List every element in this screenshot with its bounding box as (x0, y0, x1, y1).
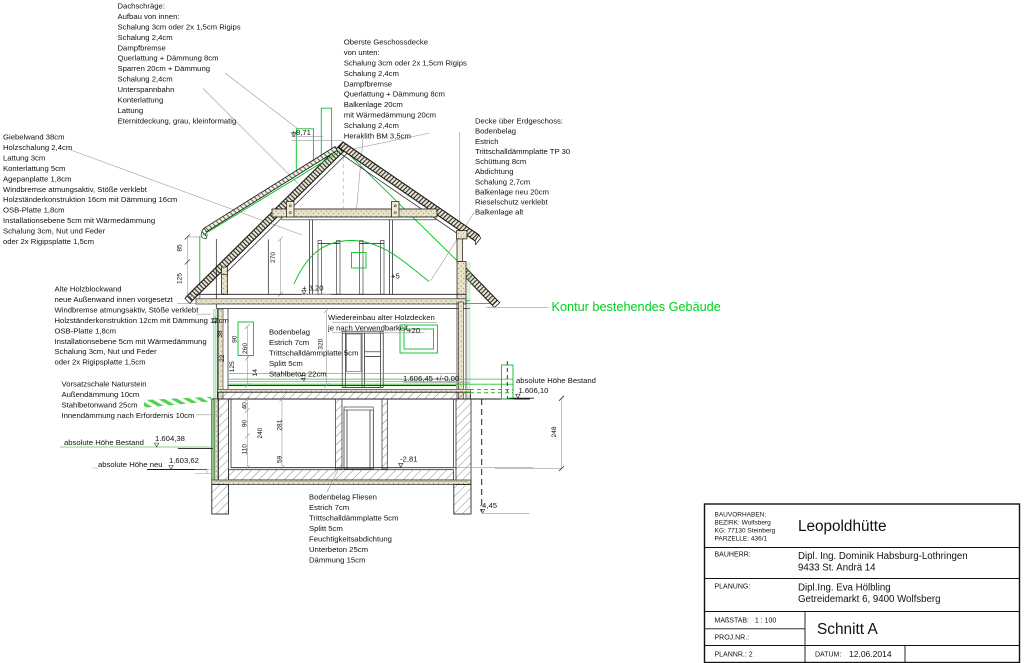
svg-text:40: 40 (242, 402, 249, 410)
svg-text:Holzständerkonstruktion 16cm m: Holzständerkonstruktion 16cm mit Dämmung… (3, 195, 177, 204)
svg-text:Schalung 3cm, Nut und Feder: Schalung 3cm, Nut und Feder (55, 347, 158, 356)
svg-text:Sparren 20cm + Dämmung: Sparren 20cm + Dämmung (118, 64, 211, 73)
svg-text:Dämmung 15cm: Dämmung 15cm (309, 556, 365, 565)
svg-text:oder 2x Rigipsplatte 1,5cm: oder 2x Rigipsplatte 1,5cm (55, 358, 146, 367)
svg-text:Querlattung + Dämmung 8cm: Querlattung + Dämmung 8cm (118, 54, 219, 63)
svg-text:1.604,38: 1.604,38 (155, 434, 185, 443)
svg-text:90: 90 (242, 420, 249, 428)
svg-text:je nach Verwendbarkeit: je nach Verwendbarkeit (327, 323, 409, 332)
svg-text:MAßSTAB: 1 : 100: MAßSTAB: 1 : 100 (715, 618, 777, 625)
svg-text:Estrich 7cm: Estrich 7cm (269, 338, 309, 347)
svg-text:Unterbeton 25cm: Unterbeton 25cm (309, 545, 368, 554)
svg-text:Heraklith BM 3,5cm: Heraklith BM 3,5cm (344, 132, 411, 141)
svg-text:22: 22 (219, 354, 226, 362)
svg-text:110: 110 (242, 444, 249, 455)
svg-text:Außendämmung 10cm: Außendämmung 10cm (62, 390, 140, 399)
svg-text:PARZELLE: 436/1: PARZELLE: 436/1 (715, 536, 768, 543)
svg-text:85: 85 (177, 244, 184, 252)
svg-text:OSB-Platte 1,8cm: OSB-Platte 1,8cm (55, 326, 117, 335)
svg-text:9433 St. Andrä 14: 9433 St. Andrä 14 (798, 563, 876, 574)
svg-text:Stahlbeton 22cm: Stahlbeton 22cm (269, 370, 327, 379)
svg-text:DATUM:: DATUM: (815, 652, 841, 659)
svg-text:Schalung 2,4cm: Schalung 2,4cm (344, 69, 399, 78)
svg-text:oder 2x Rigipsplatte 1,5cm: oder 2x Rigipsplatte 1,5cm (3, 237, 94, 246)
svg-text:von unten:: von unten: (344, 48, 380, 57)
svg-text:Windbremse atmungsaktiv, Stöße: Windbremse atmungsaktiv, Stöße verklebt (55, 305, 200, 314)
svg-text:Installationsebene 5cm mit Wär: Installationsebene 5cm mit Wärmedämmung (3, 216, 155, 225)
svg-text:125: 125 (177, 273, 184, 284)
svg-text:KG: 77130 Steinberg: KG: 77130 Steinberg (715, 528, 776, 535)
svg-text:Lattung 3cm: Lattung 3cm (3, 153, 45, 162)
svg-text:Dachschräge:: Dachschräge: (118, 2, 165, 11)
svg-text:absolute Höhe Bestand: absolute Höhe Bestand (64, 438, 144, 447)
svg-text:neue Außenwand innen vorgesetz: neue Außenwand innen vorgesetzt (55, 295, 174, 304)
svg-text:mit Wärmedämmung 20cm: mit Wärmedämmung 20cm (344, 111, 436, 120)
svg-text:320: 320 (318, 338, 325, 349)
svg-text:Wiedereinbau alter Holzdecken: Wiedereinbau alter Holzdecken (328, 313, 435, 322)
svg-text:Konterlattung: Konterlattung (118, 96, 164, 105)
svg-text:Schalung 2,4cm: Schalung 2,4cm (118, 75, 173, 84)
svg-text:+20: +20 (407, 326, 420, 335)
svg-text:Balkenlage 20cm: Balkenlage 20cm (344, 100, 403, 109)
svg-text:Aufbau von innen:: Aufbau von innen: (118, 12, 180, 21)
svg-text:+ 3,20: + 3,20 (302, 283, 324, 292)
svg-text:Holzständerkonstruktion 12cm m: Holzständerkonstruktion 12cm mit Dämmung… (55, 316, 229, 325)
svg-text:Konterlattung 5cm: Konterlattung 5cm (3, 164, 65, 173)
svg-text:Trittschalldämmplatte 5cm: Trittschalldämmplatte 5cm (309, 514, 398, 523)
svg-text:Schalung 3cm oder 2x 1,5cm Rig: Schalung 3cm oder 2x 1,5cm Rigips (118, 22, 241, 31)
svg-text:Kontur bestehendes Gebäude: Kontur bestehendes Gebäude (552, 300, 721, 314)
svg-text:OSB-Platte 1,8cm: OSB-Platte 1,8cm (3, 206, 65, 215)
svg-text:Splitt 5cm: Splitt 5cm (309, 524, 343, 533)
svg-text:PLANUNG:: PLANUNG: (715, 584, 751, 591)
svg-text:absolute Höhe Bestand: absolute Höhe Bestand (516, 376, 596, 385)
svg-text:BEZIRK: Wolfsberg: BEZIRK: Wolfsberg (715, 520, 772, 527)
svg-text:Alte Holzblockwand: Alte Holzblockwand (55, 285, 122, 294)
svg-text:281: 281 (277, 419, 284, 430)
svg-text:Balkenlage alt: Balkenlage alt (475, 208, 524, 217)
svg-text:1.606,10: 1.606,10 (519, 386, 549, 395)
svg-text:38: 38 (217, 330, 224, 338)
svg-text:Schalung 2,4cm: Schalung 2,4cm (118, 33, 173, 42)
svg-text:Schüttung 8cm: Schüttung 8cm (475, 157, 526, 166)
svg-text:Oberste Geschossdecke: Oberste Geschossdecke (344, 38, 428, 47)
svg-text:59: 59 (277, 455, 284, 463)
svg-text:-2,81: -2,81 (400, 455, 418, 464)
svg-text:Giebelwand 38cm: Giebelwand 38cm (3, 133, 65, 142)
svg-text:Schalung 2,7cm: Schalung 2,7cm (475, 177, 530, 186)
svg-text:Dampfbremse: Dampfbremse (344, 79, 392, 88)
svg-text:1.603,62: 1.603,62 (169, 456, 199, 465)
svg-text:14: 14 (252, 369, 259, 377)
svg-text:PLANNR.: 2: PLANNR.: 2 (715, 652, 753, 659)
svg-text:BAUVORHABEN:: BAUVORHABEN: (715, 512, 767, 519)
svg-text:1.606,45 +/-0,00: 1.606,45 +/-0,00 (403, 374, 459, 383)
svg-text:Balkenlage neu 20cm: Balkenlage neu 20cm (475, 187, 549, 196)
svg-text:Schalung 2,4cm: Schalung 2,4cm (344, 121, 399, 130)
svg-text:Splitt 5cm: Splitt 5cm (269, 359, 303, 368)
svg-text:Rieselschutz verklebt: Rieselschutz verklebt (475, 198, 548, 207)
svg-text:Installationsebene 5cm mit Wär: Installationsebene 5cm mit Wärmedämmung (55, 337, 207, 346)
svg-text:Agepanplatte 1,8cm: Agepanplatte 1,8cm (3, 174, 71, 183)
svg-text:Feuchtigkeitsabdichtung: Feuchtigkeitsabdichtung (309, 535, 392, 544)
svg-text:Decke über Erdgeschoss:: Decke über Erdgeschoss: (475, 117, 563, 126)
svg-text:+5: +5 (391, 272, 400, 281)
svg-text:Dampfbremse: Dampfbremse (118, 43, 166, 52)
svg-text:Trittschalldämmplatte TP 30: Trittschalldämmplatte TP 30 (475, 147, 570, 156)
svg-text:Bodenbelag: Bodenbelag (475, 127, 516, 136)
svg-text:Windbremse atmungsaktiv, Stöße: Windbremse atmungsaktiv, Stöße verklebt (3, 185, 148, 194)
svg-text:248: 248 (551, 426, 558, 437)
svg-text:Lattung: Lattung (118, 106, 144, 115)
svg-text:PROJ.NR.:: PROJ.NR.: (715, 635, 750, 642)
svg-text:Dipl. Ing. Dominik Habsburg-Lo: Dipl. Ing. Dominik Habsburg-Lothringen (798, 551, 968, 562)
svg-text:Trittschalldämmplatte 5cm: Trittschalldämmplatte 5cm (269, 349, 358, 358)
svg-text:Getreidemarkt 6, 9400 Wolfsber: Getreidemarkt 6, 9400 Wolfsberg (798, 594, 941, 605)
svg-text:absolute Höhe neu: absolute Höhe neu (98, 460, 163, 469)
svg-text:Holzschalung 2,4cm: Holzschalung 2,4cm (3, 143, 72, 152)
svg-text:Dipl.Ing. Eva Hölbling: Dipl.Ing. Eva Hölbling (798, 583, 891, 594)
svg-text:90: 90 (231, 335, 238, 343)
svg-text:240: 240 (257, 427, 264, 438)
svg-text:41: 41 (300, 373, 307, 381)
svg-text:Estrich: Estrich (475, 137, 499, 146)
svg-text:Unterspannbahn: Unterspannbahn (118, 85, 175, 94)
svg-text:12.06.2014: 12.06.2014 (849, 649, 892, 659)
svg-text:Bodenbelag: Bodenbelag (269, 328, 310, 337)
svg-text:-4,45: -4,45 (480, 501, 498, 510)
svg-text:Eternitdeckung, grau, kleinfor: Eternitdeckung, grau, kleinformatig (118, 116, 237, 125)
svg-text:Schalung 3cm oder 2x 1,5cm Rig: Schalung 3cm oder 2x 1,5cm Rigips (344, 58, 467, 67)
svg-text:Abdichtung: Abdichtung (475, 167, 513, 176)
svg-text:Vorsatzschale Naturstein: Vorsatzschale Naturstein (62, 380, 147, 389)
svg-text:40: 40 (213, 317, 219, 323)
svg-text:260: 260 (242, 343, 249, 354)
svg-text:125: 125 (229, 361, 236, 372)
svg-text:270: 270 (270, 252, 277, 263)
svg-text:BAUHERR:: BAUHERR: (715, 552, 751, 559)
svg-text:Querlattung + Dämmung 8cm: Querlattung + Dämmung 8cm (344, 90, 445, 99)
svg-text:Innendämmung nach Erfordernis: Innendämmung nach Erfordernis 10cm (62, 411, 195, 420)
svg-text:Schalung 3cm, Nut und Feder: Schalung 3cm, Nut und Feder (3, 227, 106, 236)
svg-text:Bodenbelag Fliesen: Bodenbelag Fliesen (309, 493, 377, 502)
svg-text:Leopoldhütte: Leopoldhütte (798, 518, 886, 535)
svg-text:Estrich 7cm: Estrich 7cm (309, 503, 349, 512)
svg-text:Stahlbetonwand 25cm: Stahlbetonwand 25cm (62, 400, 138, 409)
svg-text:Schnitt A: Schnitt A (817, 621, 878, 638)
